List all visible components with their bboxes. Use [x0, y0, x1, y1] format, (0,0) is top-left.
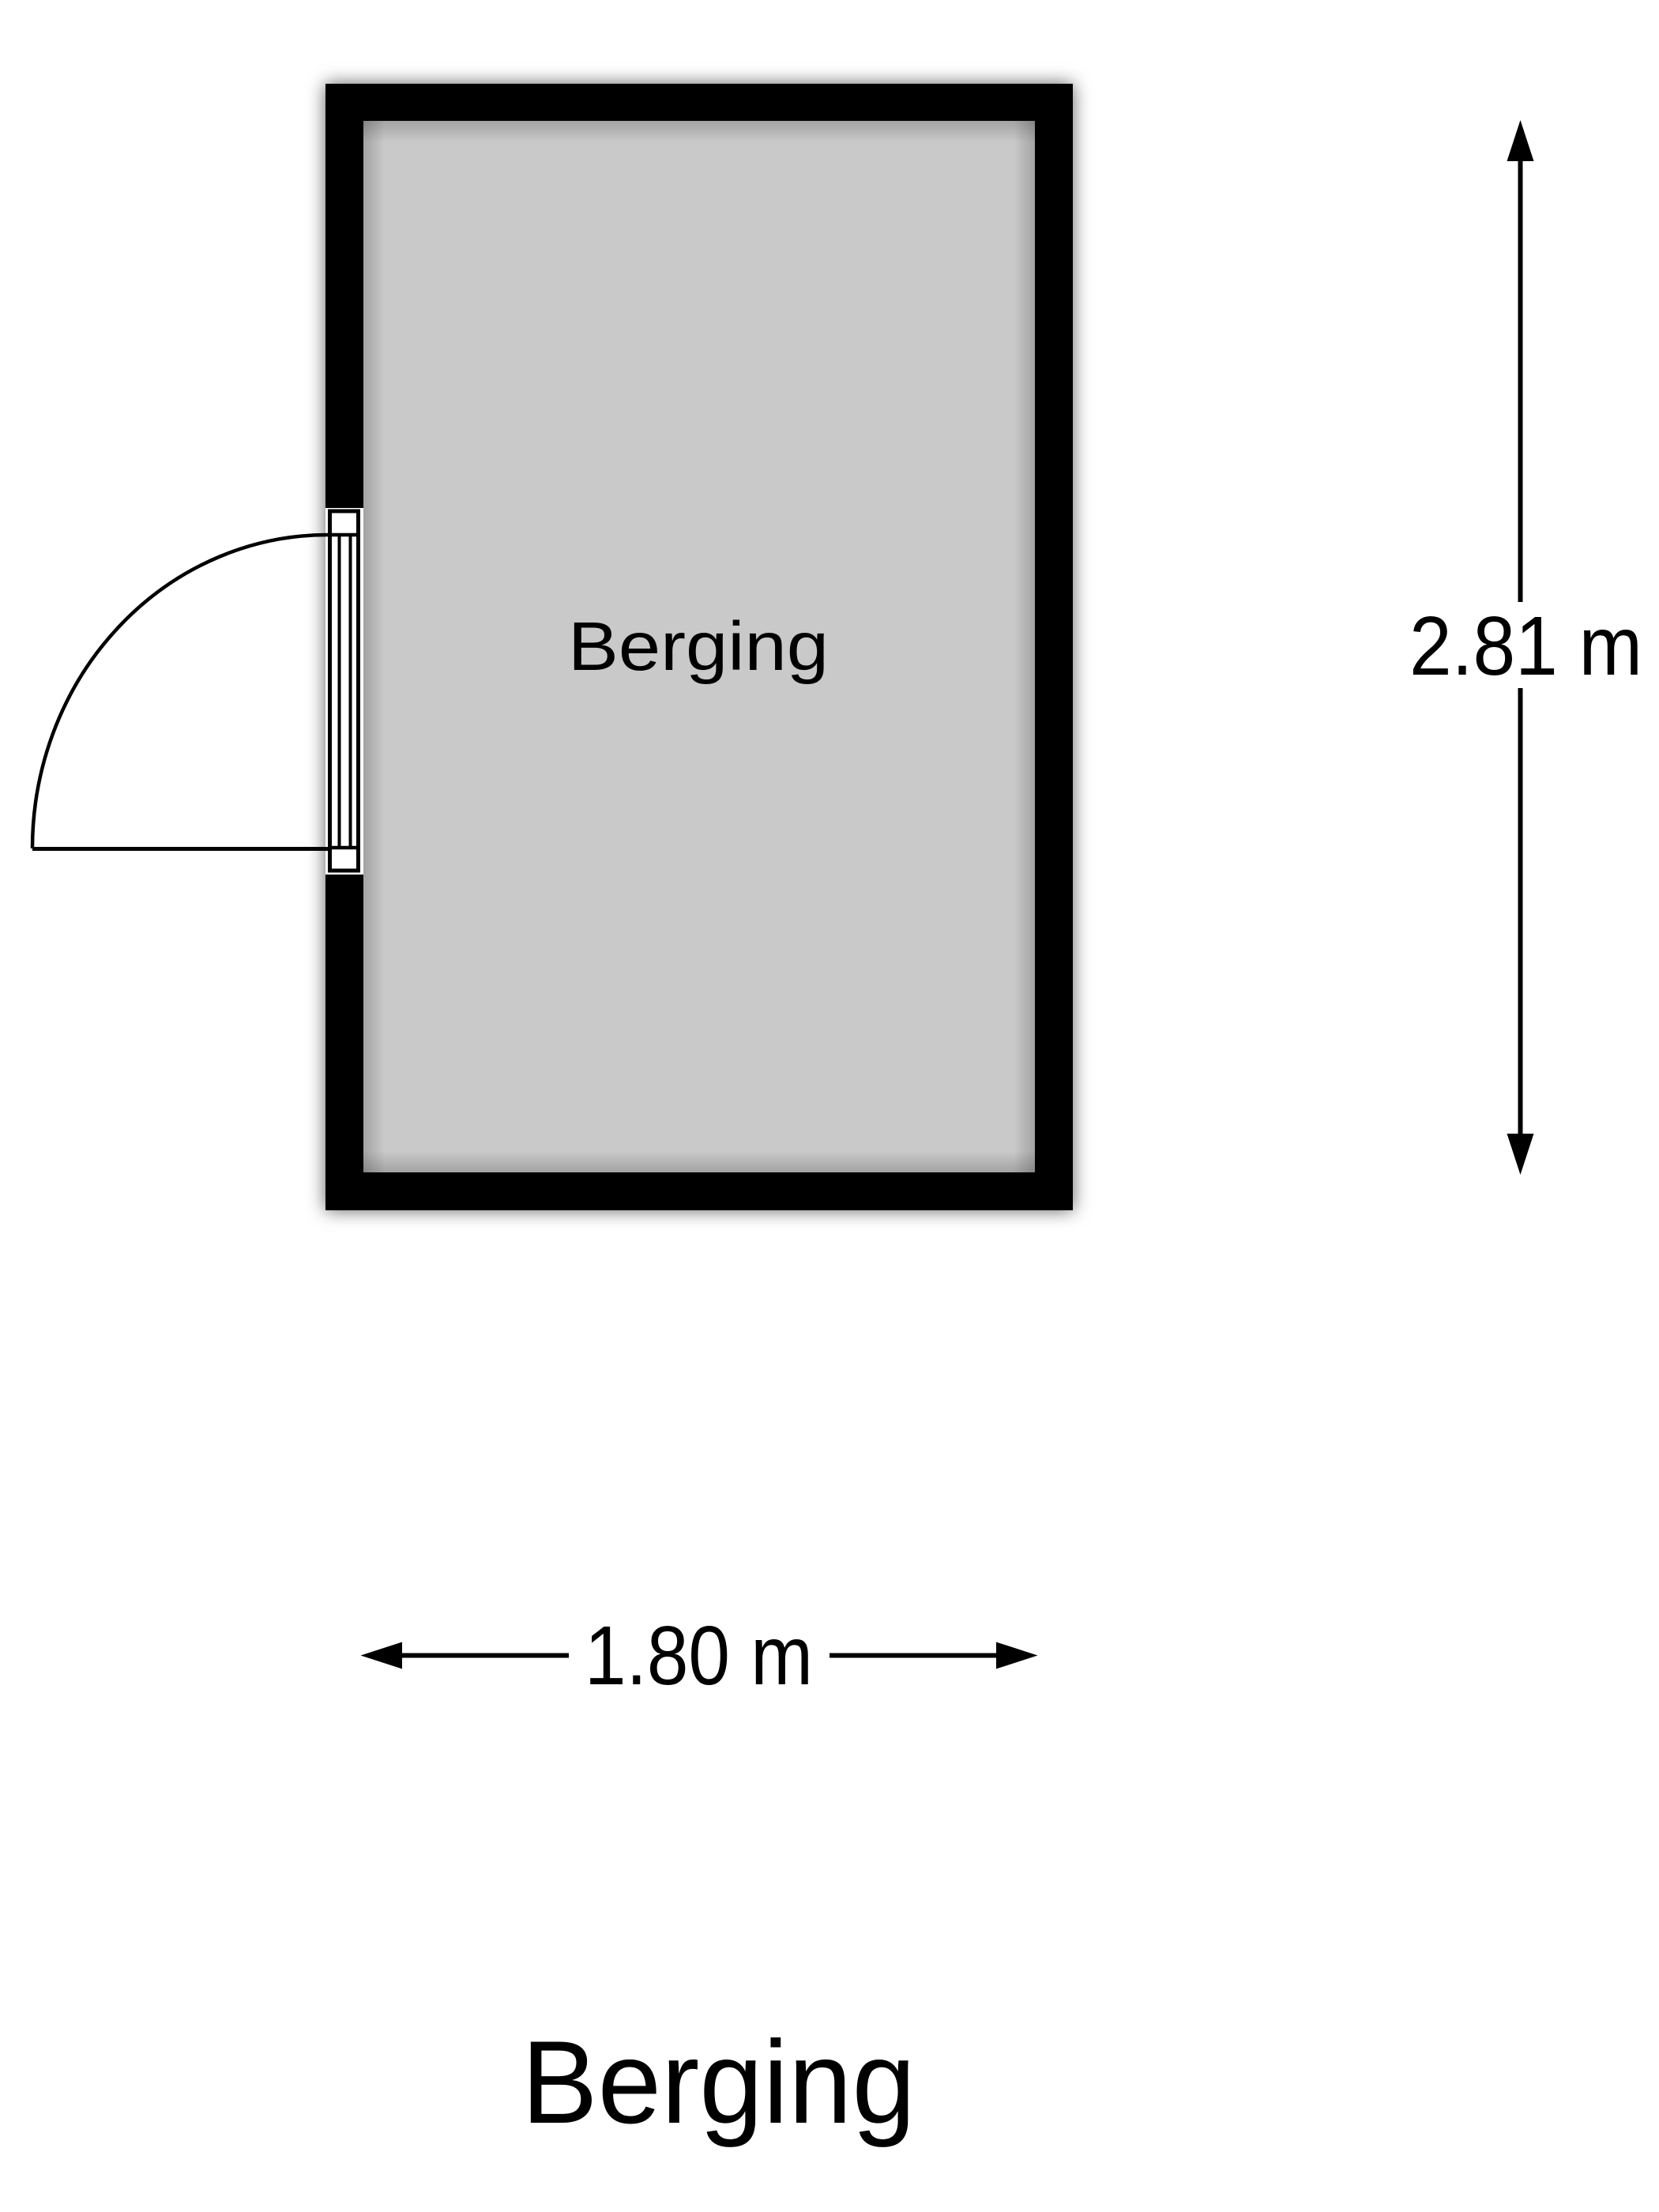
svg-text:Berging: Berging	[521, 2016, 916, 2148]
svg-text:2.81 m: 2.81 m	[1409, 600, 1642, 693]
svg-text:1.80 m: 1.80 m	[585, 1609, 813, 1702]
svg-text:Berging: Berging	[568, 608, 829, 685]
